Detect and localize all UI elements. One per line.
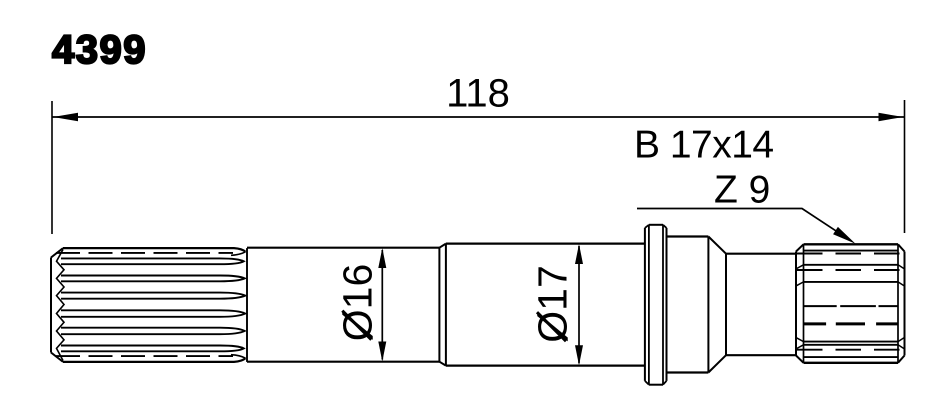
svg-text:Ø16: Ø16 [335, 264, 381, 342]
svg-text:Z 9: Z 9 [714, 169, 770, 212]
svg-text:Ø17: Ø17 [530, 265, 576, 343]
svg-text:4399: 4399 [52, 28, 147, 72]
svg-text:B 17x14: B 17x14 [634, 124, 774, 167]
svg-text:118: 118 [446, 72, 510, 116]
